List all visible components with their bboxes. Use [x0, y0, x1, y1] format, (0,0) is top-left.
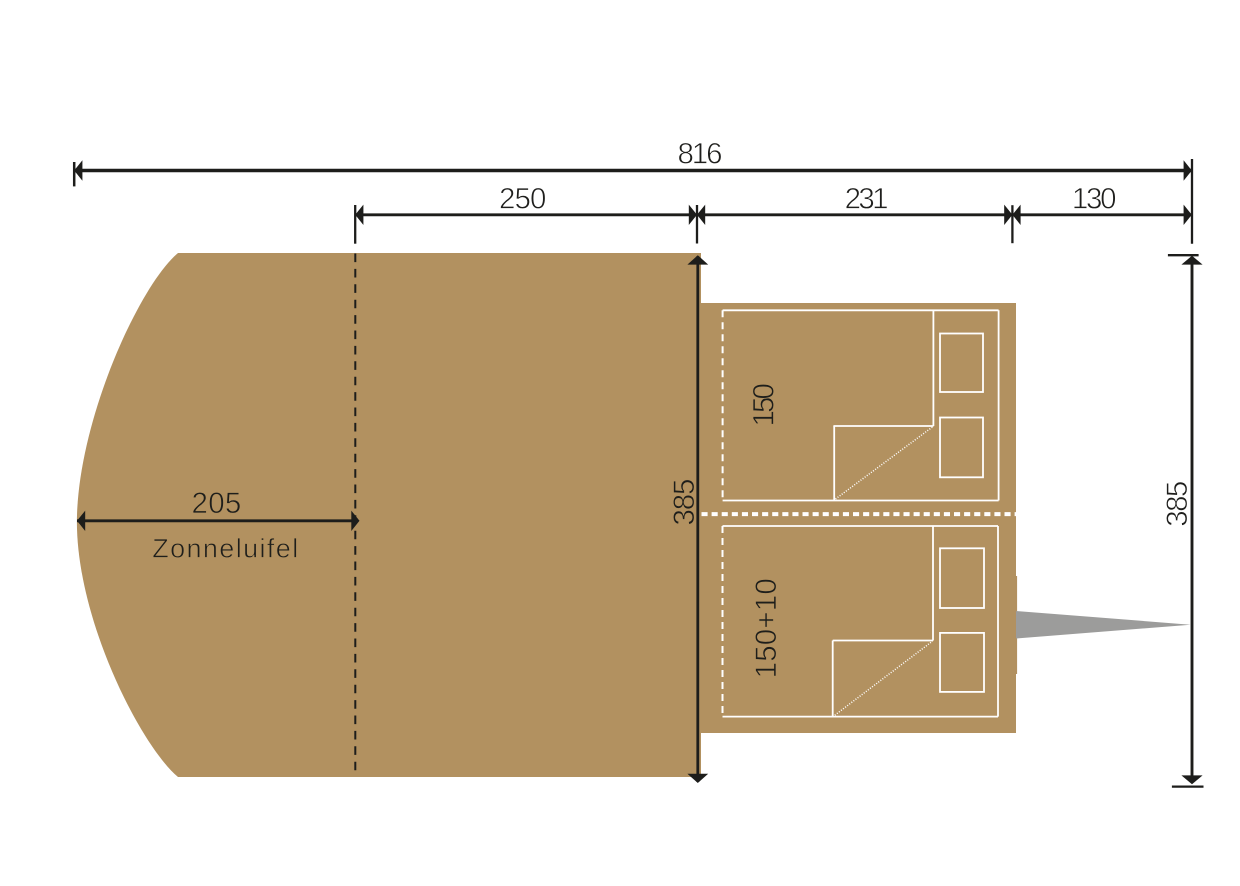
svg-text:Zonneluifel: Zonneluifel: [152, 534, 298, 564]
svg-text:385: 385: [1161, 481, 1194, 527]
svg-text:250: 250: [499, 182, 546, 215]
svg-text:150+10: 150+10: [750, 578, 783, 678]
svg-text:130: 130: [1072, 182, 1117, 215]
svg-text:205: 205: [192, 487, 242, 520]
svg-text:150: 150: [748, 383, 781, 427]
svg-text:231: 231: [845, 182, 889, 215]
svg-text:816: 816: [678, 137, 723, 170]
svg-text:385: 385: [668, 479, 701, 526]
